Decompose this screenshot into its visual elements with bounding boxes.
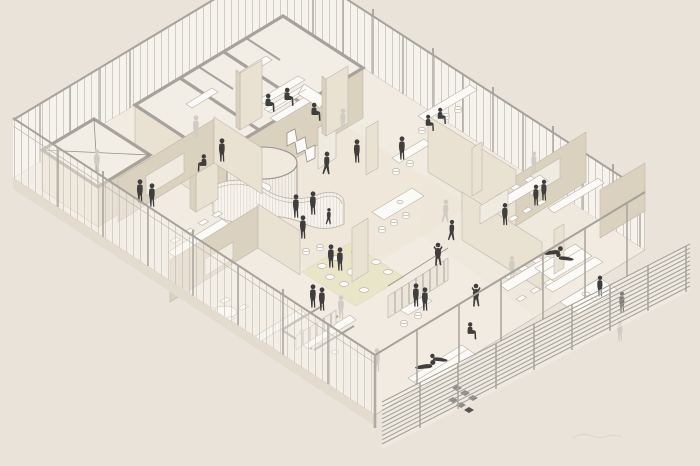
- door-slab: [366, 121, 378, 175]
- door-slab: [472, 142, 482, 196]
- floor-plan-svg: [0, 0, 700, 466]
- axonometric-drawing: [0, 0, 700, 466]
- stair-wall: [352, 218, 368, 282]
- faint-signature-mark: [572, 434, 622, 438]
